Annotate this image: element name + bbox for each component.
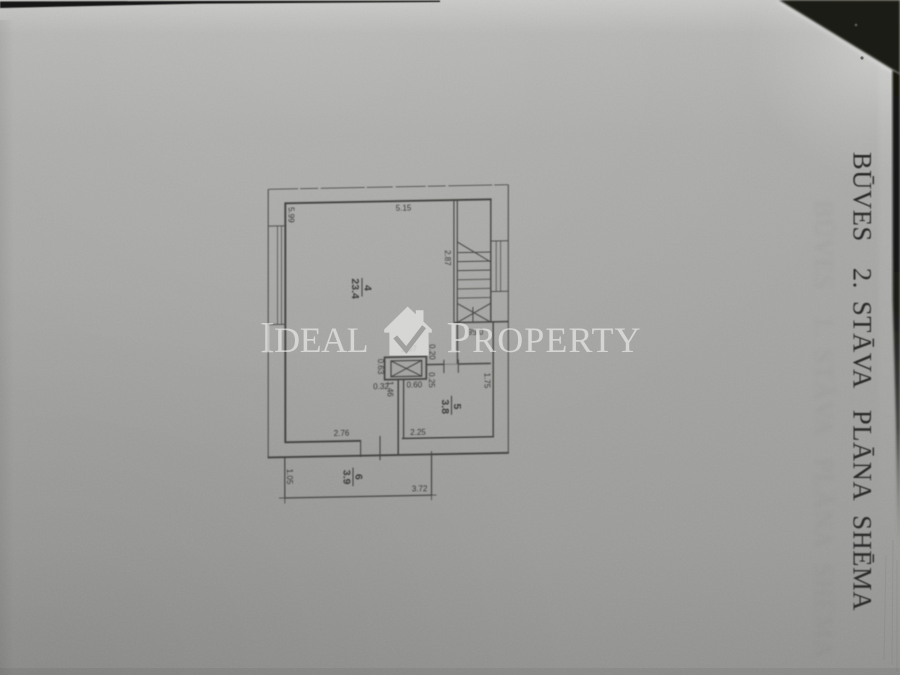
svg-text:0.32: 0.32	[373, 382, 389, 391]
svg-text:2.76: 2.76	[334, 429, 350, 438]
svg-text:BŪVES1.STĀVAPLĀNASHĒMA: BŪVES1.STĀVAPLĀNASHĒMA	[809, 200, 839, 659]
svg-text:2.87: 2.87	[443, 250, 452, 266]
svg-text:3.9: 3.9	[341, 470, 353, 485]
svg-text:3.72: 3.72	[412, 484, 428, 493]
svg-text:1.05: 1.05	[285, 469, 294, 485]
svg-text:23.4: 23.4	[349, 278, 361, 299]
svg-text:4: 4	[362, 285, 374, 291]
svg-text:2.25: 2.25	[410, 428, 426, 437]
svg-text:5: 5	[451, 403, 463, 409]
svg-text:1.75: 1.75	[483, 373, 492, 389]
svg-text:5.15: 5.15	[396, 204, 412, 213]
svg-text:PROPERTY: PROPERTY	[447, 313, 642, 362]
svg-text:0.63: 0.63	[376, 359, 385, 375]
svg-text:IDEAL: IDEAL	[260, 313, 368, 362]
svg-text:3.8: 3.8	[439, 399, 451, 414]
svg-text:0.60: 0.60	[407, 381, 423, 390]
svg-text:5.99: 5.99	[287, 207, 296, 223]
svg-text:0.25: 0.25	[427, 372, 436, 388]
svg-text:BŪVES2.STĀVAPLĀNASHĒMA: BŪVES2.STĀVAPLĀNASHĒMA	[848, 152, 878, 611]
svg-text:0.20: 0.20	[427, 344, 436, 360]
svg-text:6: 6	[353, 474, 365, 480]
